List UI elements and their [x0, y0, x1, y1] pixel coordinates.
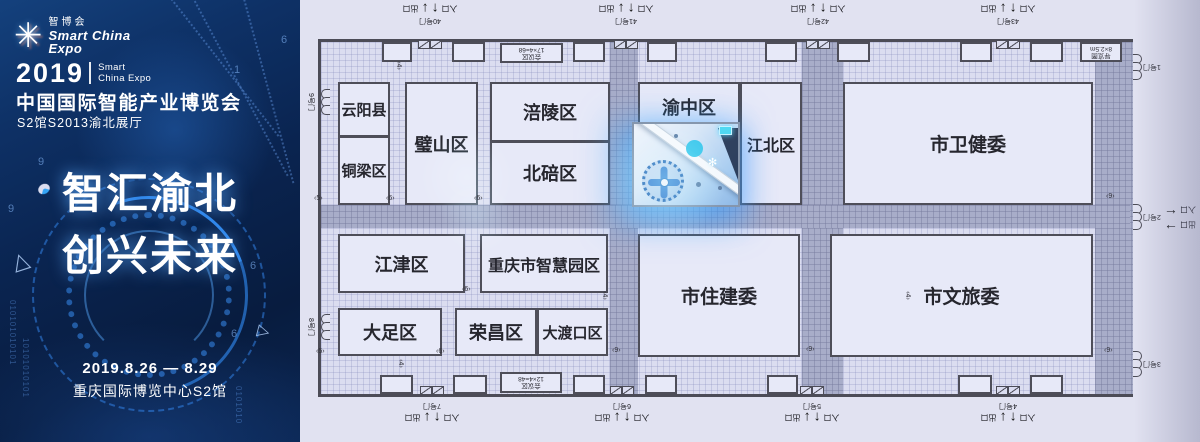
gate-arrows: →入口←出口 [1164, 203, 1196, 231]
decor-digit: 1 [234, 64, 240, 76]
labeled-area-导览图: 导览图8×2.5m [1080, 42, 1122, 62]
entrance-label: 入口 [638, 3, 654, 14]
area-name: 会议区 [522, 53, 542, 60]
wall-booth [767, 375, 798, 394]
door-arc [800, 386, 812, 395]
decor-digit: 6 [250, 260, 256, 272]
gate-43号门: 43号门入口↑↓出口 [963, 2, 1053, 26]
gate-41号门: 41号门入口↑↓出口 [581, 2, 671, 26]
booth-wenlvwei: 市文旅委 [830, 234, 1093, 357]
dimension-marker: ‹9› [612, 347, 621, 354]
wall-booth [958, 375, 992, 394]
gate-3号门: 3号门 [1133, 352, 1161, 376]
entrance-label: 入口 [634, 412, 650, 423]
event-dates: 2019.8.26 — 8.29 [0, 360, 300, 377]
propeller-hub [660, 178, 669, 187]
door-scallops [1133, 55, 1142, 79]
exit-label: 出口 [981, 412, 997, 423]
door-arc [818, 40, 830, 49]
wall-booth [453, 375, 487, 394]
door-arc [626, 40, 638, 49]
gate-arrows: 入口↑↓出口 [981, 411, 1036, 424]
door-swing-42号门 [806, 40, 830, 49]
gate-number: 7号门 [423, 400, 441, 411]
down-arrow-icon: ↓ [424, 411, 431, 424]
area-dims: 12×4=48 [518, 376, 544, 383]
labeled-area-会议区: 会议区17×4=68 [500, 43, 563, 63]
year-sub2: China Expo [98, 73, 151, 84]
binary-column: 010101010101 [8, 300, 17, 365]
logo-en2: Expo [49, 42, 131, 55]
exit-label: 出口 [785, 412, 801, 423]
booth-jiangbei: 江北区 [740, 82, 802, 205]
area-dims: 8×2.5m [1090, 45, 1112, 52]
floor-plan: 云阳县铜梁区璧山区涪陵区北碚区渝中区江北区市卫健委江津区重庆市智慧园区大足区荣昌… [300, 0, 1200, 442]
round-table [686, 140, 703, 157]
up-arrow-icon: ↑ [628, 2, 635, 15]
entrance-label: 入口 [830, 3, 846, 14]
booth-label: 大渡口区 [542, 322, 602, 343]
entrance-label: 入口 [1180, 204, 1196, 215]
booth-label: 市住建委 [681, 282, 757, 309]
booth-label: 市文旅委 [923, 282, 999, 309]
door-arc [996, 386, 1008, 395]
booth-yunyang: 云阳县 [338, 82, 390, 137]
door-arc [1008, 40, 1020, 49]
door-arc [432, 386, 444, 395]
door-swing-5号门 [800, 386, 824, 395]
up-arrow-icon: ↑ [820, 2, 827, 15]
up-arrow-icon: ↑ [1010, 2, 1017, 15]
exit-label: 出口 [595, 412, 611, 423]
binary-column: 10101010101 [21, 338, 30, 398]
dimension-marker: ‹4› [904, 291, 911, 300]
booth-dazu: 大足区 [338, 308, 442, 356]
decor-digit: 9 [38, 156, 44, 168]
up-arrow-icon: ↑ [434, 411, 441, 424]
entrance-label: 入口 [824, 412, 840, 423]
gate-1号门: 1号门 [1133, 55, 1161, 79]
exit-label: 出口 [981, 3, 997, 14]
slogan-line2: 创兴未来 [0, 222, 300, 283]
door-arc [420, 386, 432, 395]
up-arrow-icon: ↑ [814, 411, 821, 424]
down-arrow-icon: ↓ [618, 2, 625, 15]
furniture-dot [718, 186, 722, 190]
door-arc [610, 386, 622, 395]
wall-booth [645, 375, 677, 394]
gate-number: 6号门 [613, 400, 631, 411]
dimension-marker: ‹4› [601, 291, 608, 300]
dimension-marker: ‹4› [397, 359, 404, 368]
gate-number: 8号门 [306, 318, 316, 336]
door-scallops [321, 315, 330, 339]
wall-booth [1030, 42, 1063, 62]
door-swing-43号门 [996, 40, 1020, 49]
down-arrow-icon: ↓ [804, 411, 811, 424]
booth-label: 大足区 [363, 319, 417, 345]
gate-40号门: 40号门入口↑↓出口 [385, 2, 475, 26]
wall-booth [380, 375, 413, 394]
booth-label: 重庆市智慧园区 [488, 252, 600, 276]
gate-number: 5号门 [803, 400, 821, 411]
wall-booth [573, 42, 605, 62]
door-swing-6号门 [610, 386, 634, 395]
binary-column: 0101010 [234, 386, 243, 424]
down-arrow-icon: ↓ [614, 411, 621, 424]
door-arc [614, 40, 626, 49]
booth-fuling: 涪陵区 [490, 82, 610, 142]
gate-2号门: 2号门→入口←出口 [1133, 203, 1196, 231]
gate-number: 1号门 [1143, 62, 1161, 72]
divider [89, 62, 91, 84]
gate-number: 4号门 [999, 400, 1017, 411]
door-arc [996, 40, 1008, 49]
labeled-area-会议区: 会议区12×4=48 [500, 372, 562, 393]
booth-label: 铜梁区 [341, 160, 386, 181]
left-arrow-icon: ← [1164, 218, 1178, 231]
booth-zhihui: 重庆市智慧园区 [480, 234, 608, 293]
expo-floorplan-poster: △ △ ✳ 智博会 Smart China Expo 2019 Smart Ch… [0, 0, 1200, 442]
door-swing-4号门 [996, 386, 1020, 395]
gate-arrows: 入口↑↓出口 [981, 2, 1036, 15]
dimension-marker: ‹6› [474, 195, 483, 202]
snowflake-decor: ✻ [708, 156, 717, 169]
booth-weijianwei: 市卫健委 [843, 82, 1093, 205]
furniture-dot [696, 182, 701, 187]
drone-propeller [642, 160, 684, 202]
door-scallops [1133, 352, 1142, 376]
furniture-dot [674, 134, 678, 138]
exit-label: 出口 [403, 3, 419, 14]
gate-number: 2号门 [1143, 212, 1161, 222]
booth-rongchang: 荣昌区 [455, 308, 537, 356]
booth-label: 涪陵区 [523, 99, 577, 125]
gate-9号门: 9号门 [302, 90, 330, 114]
decor-digit: 9 [8, 203, 14, 215]
decor-digit: 6 [281, 34, 287, 46]
dimension-marker: ‹5› [316, 348, 325, 355]
door-arc [1008, 386, 1020, 395]
up-arrow-icon: ↑ [432, 2, 439, 15]
down-arrow-icon: ↓ [810, 2, 817, 15]
booth-bishan: 璧山区 [405, 82, 478, 205]
wall-booth [382, 42, 412, 62]
booth-dadukou: 大渡口区 [537, 308, 608, 356]
decor-digit: 6 [231, 328, 237, 340]
up-arrow-icon: ↑ [1010, 411, 1017, 424]
entrance-label: 入口 [1020, 412, 1036, 423]
wall-booth [452, 42, 485, 62]
starburst-icon: ✳ [14, 19, 43, 53]
wall-booth [1030, 375, 1063, 394]
exit-label: 出口 [1180, 219, 1196, 230]
right-arrow-icon: → [1164, 203, 1178, 216]
booth-label: 荣昌区 [469, 319, 523, 345]
dimension-marker: ‹9› [806, 346, 815, 353]
down-arrow-icon: ↓ [1000, 411, 1007, 424]
door-arc [430, 40, 442, 49]
gate-4号门: 入口↑↓出口4号门 [963, 400, 1053, 424]
cyan-skylight [719, 126, 732, 135]
door-arc [812, 386, 824, 395]
door-arc [622, 386, 634, 395]
area-dims: 17×4=68 [519, 46, 545, 53]
gate-arrows: 入口↑↓出口 [405, 411, 460, 424]
gate-arrows: 入口↑↓出口 [785, 411, 840, 424]
entrance-label: 入口 [1020, 3, 1036, 14]
gate-arrows: 入口↑↓出口 [599, 2, 654, 15]
door-arc [806, 40, 818, 49]
down-arrow-icon: ↓ [1000, 2, 1007, 15]
year-sub1: Smart [98, 62, 151, 73]
exit-label: 出口 [405, 412, 421, 423]
gate-8号门: 8号门 [302, 315, 330, 339]
dimension-marker: ‹9› [1104, 347, 1113, 354]
area-name: 导览图 [1091, 52, 1111, 59]
booth-jiangjin: 江津区 [338, 234, 465, 293]
entrance-label: 入口 [442, 3, 458, 14]
dimension-marker: ‹5› [314, 195, 323, 202]
expo-logo: ✳ 智博会 Smart China Expo [14, 16, 131, 55]
gate-5号门: 入口↑↓出口5号门 [767, 400, 857, 424]
aisle [321, 205, 1130, 228]
slogan-line1: 智汇渝北 [0, 160, 300, 221]
wall-booth [837, 42, 870, 62]
booth-label: 北碚区 [523, 160, 577, 186]
booth-beibei: 北碚区 [490, 141, 610, 205]
dimension-marker: ‹6› [436, 348, 445, 355]
year: 2019 [16, 60, 84, 86]
dimension-marker: ‹4› [395, 61, 402, 70]
gate-number: 3号门 [1143, 359, 1161, 369]
down-arrow-icon: ↓ [422, 2, 429, 15]
door-arc [418, 40, 430, 49]
door-scallops [321, 90, 330, 114]
dimension-marker: ‹9› [1106, 193, 1115, 200]
booth-label: 江津区 [375, 251, 429, 277]
wall-booth [647, 42, 677, 62]
wall-booth [960, 42, 992, 62]
door-swing-7号门 [420, 386, 444, 395]
gate-7号门: 入口↑↓出口7号门 [387, 400, 477, 424]
area-name: 会议区 [521, 383, 541, 390]
booth-label: 江北区 [747, 132, 795, 156]
yubei-3d-booth: ✻ [632, 122, 740, 207]
booth-zhujianwei: 市住建委 [638, 234, 800, 357]
entrance-label: 入口 [444, 412, 460, 423]
hall-subtitle: S2馆S2013渝北展厅 [17, 112, 143, 131]
booth-label: 渝中区 [662, 94, 716, 120]
gate-arrows: 入口↑↓出口 [403, 2, 458, 15]
booth-label: 市卫健委 [930, 130, 1006, 157]
booth-label: 璧山区 [415, 131, 469, 157]
exit-label: 出口 [599, 3, 615, 14]
dimension-marker: ‹6› [386, 195, 395, 202]
wall-booth [573, 375, 605, 394]
gate-number: 9号门 [306, 93, 316, 111]
dimension-marker: ‹6› [462, 286, 471, 293]
booth-tongliang: 铜梁区 [338, 136, 390, 205]
gate-arrows: 入口↑↓出口 [791, 2, 846, 15]
gate-42号门: 42号门入口↑↓出口 [773, 2, 863, 26]
expo-title: 中国国际智能产业博览会 [16, 88, 242, 115]
year-row: 2019 Smart China Expo [16, 60, 151, 86]
door-swing-41号门 [614, 40, 638, 49]
gate-6号门: 入口↑↓出口6号门 [577, 400, 667, 424]
venue: 重庆国际博览中心S2馆 [0, 381, 300, 401]
up-arrow-icon: ↑ [624, 411, 631, 424]
gate-arrows: 入口↑↓出口 [595, 411, 650, 424]
door-scallops [1133, 205, 1142, 229]
exit-label: 出口 [791, 3, 807, 14]
brand-panel: △ △ ✳ 智博会 Smart China Expo 2019 Smart Ch… [0, 0, 300, 442]
door-swing-40号门 [418, 40, 442, 49]
wall-booth [765, 42, 797, 62]
booth-label: 云阳县 [341, 99, 386, 120]
